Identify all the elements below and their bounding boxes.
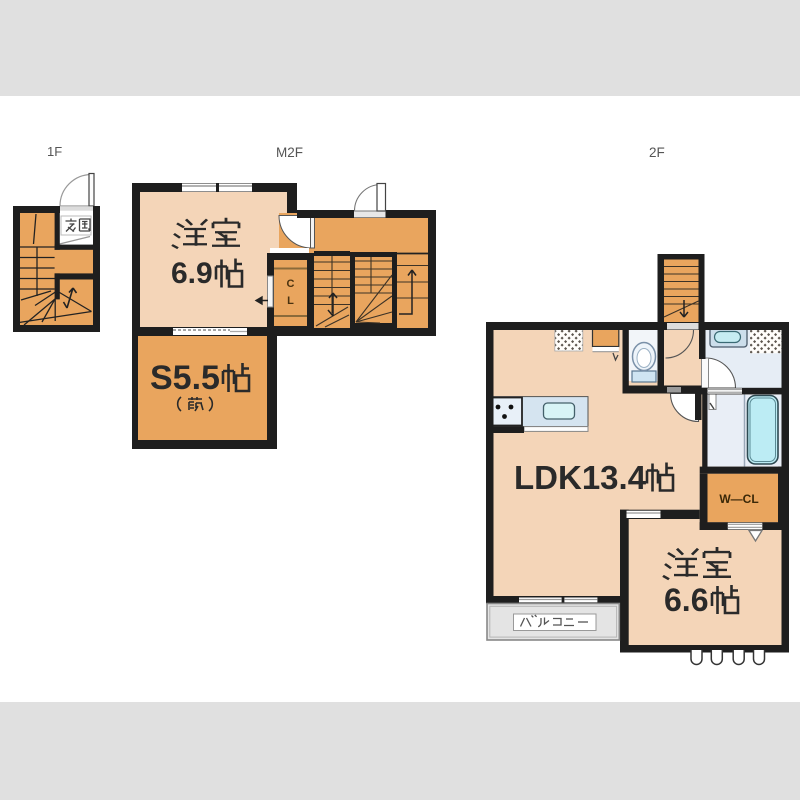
svg-text:1F: 1F xyxy=(47,144,62,159)
svg-text:LDK13.4: LDK13.4 xyxy=(514,459,647,496)
svg-text:W—CL: W—CL xyxy=(719,492,758,506)
svg-text:M2F: M2F xyxy=(276,145,303,160)
svg-text:2F: 2F xyxy=(649,145,665,160)
svg-text:6.6: 6.6 xyxy=(664,582,708,618)
svg-text:C: C xyxy=(287,278,295,290)
svg-text:L: L xyxy=(287,295,294,307)
svg-text:S5.5: S5.5 xyxy=(150,359,220,397)
svg-text:6.9: 6.9 xyxy=(171,257,213,290)
